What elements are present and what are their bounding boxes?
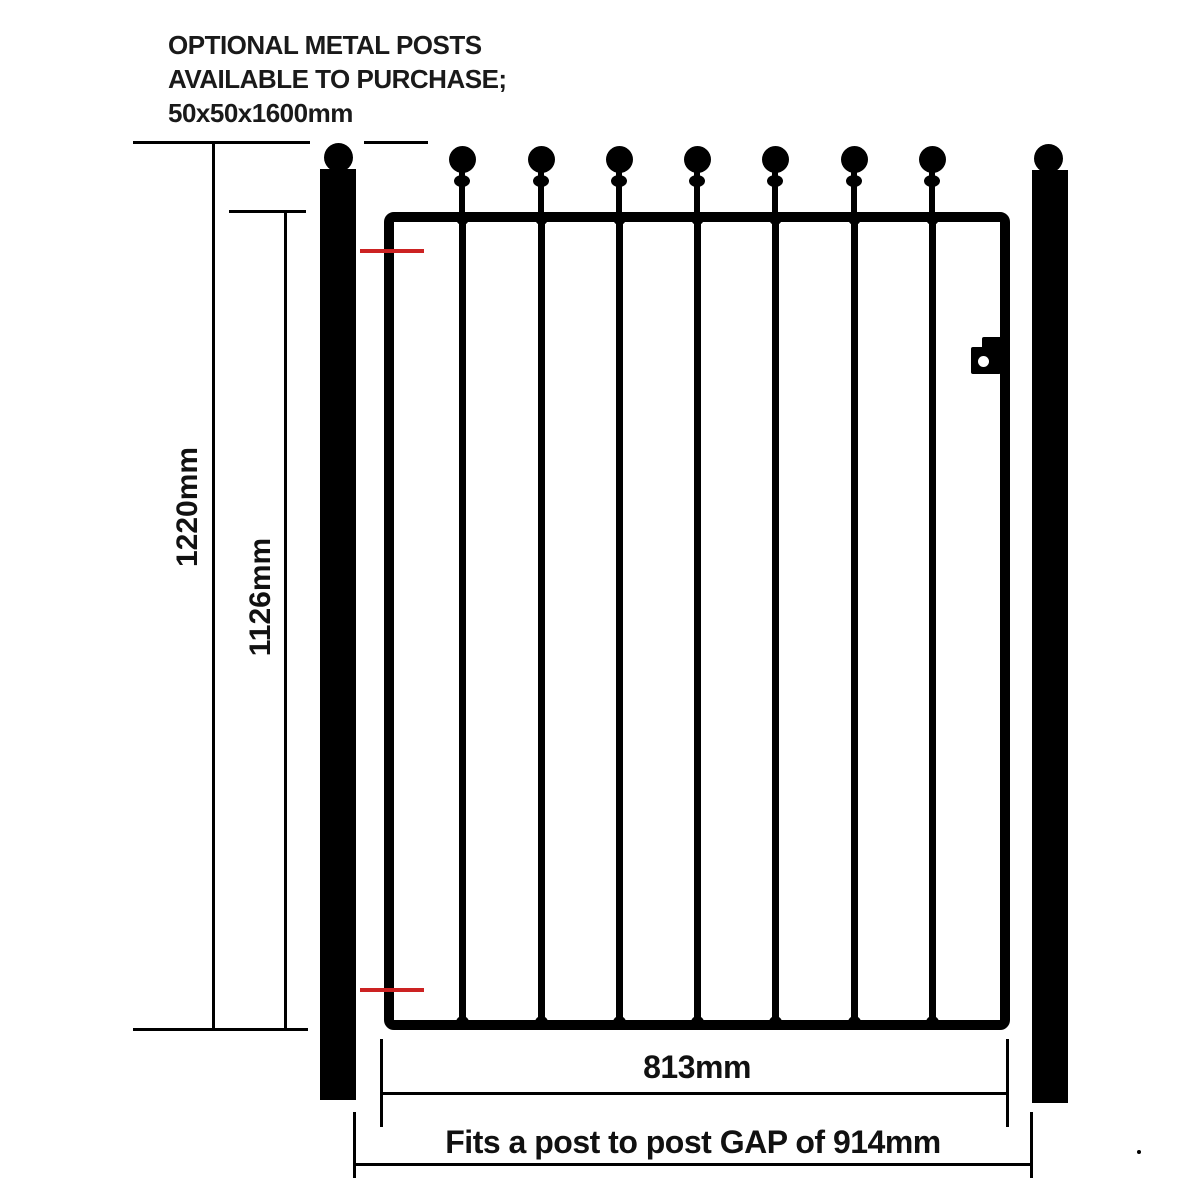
gate-vertical-bar <box>772 220 779 1024</box>
ball-finial-icon <box>449 146 476 173</box>
hinge-marker-top <box>360 249 424 253</box>
bar-top-joint <box>456 212 469 225</box>
optional-posts-note: OPTIONAL METAL POSTS AVAILABLE TO PURCHA… <box>168 28 507 130</box>
right-post <box>1032 170 1068 1103</box>
gate-vertical-bar <box>694 220 701 1024</box>
bar-bottom-joint <box>613 1016 626 1029</box>
ball-finial-icon <box>762 146 789 173</box>
extension-line-top-right <box>364 141 428 144</box>
right-post-ball-top <box>1034 144 1063 173</box>
finial-collar <box>846 175 862 187</box>
overall-height-label: 1220mm <box>171 447 205 567</box>
bar-top-joint <box>535 212 548 225</box>
ball-finial-icon <box>528 146 555 173</box>
gate-vertical-bar <box>616 220 623 1024</box>
bar-top-joint <box>848 212 861 225</box>
bar-bottom-joint <box>769 1016 782 1029</box>
note-line-3: 50x50x1600mm <box>168 96 507 130</box>
gate-height-label: 1126mm <box>244 538 278 656</box>
bar-top-joint <box>926 212 939 225</box>
latch-hole <box>978 356 989 367</box>
bar-top-joint <box>691 212 704 225</box>
bar-bottom-joint <box>691 1016 704 1029</box>
bar-bottom-joint <box>456 1016 469 1029</box>
gate-vertical-bar <box>538 220 545 1024</box>
gate-width-label: 813mm <box>384 1049 1010 1086</box>
dimension-line-overall-height <box>212 141 215 1031</box>
finial-collar <box>924 175 940 187</box>
extension-line-top-left <box>133 141 310 144</box>
ball-finial-icon <box>606 146 633 173</box>
gap-label: Fits a post to post GAP of 914mm <box>353 1124 1033 1161</box>
finial-collar <box>454 175 470 187</box>
bar-bottom-joint <box>535 1016 548 1029</box>
gate-width-dimension-line <box>380 1092 1009 1095</box>
finial-collar <box>689 175 705 187</box>
ball-finial-icon <box>684 146 711 173</box>
ball-finial-icon <box>841 146 868 173</box>
note-line-1: OPTIONAL METAL POSTS <box>168 28 507 62</box>
left-post-ball-top <box>324 143 353 172</box>
gate-dimension-diagram: OPTIONAL METAL POSTS AVAILABLE TO PURCHA… <box>0 0 1200 1200</box>
ball-finial-icon <box>919 146 946 173</box>
bar-bottom-joint <box>848 1016 861 1029</box>
dimension-line-gate-height <box>284 210 287 1031</box>
bar-bottom-joint <box>926 1016 939 1029</box>
extension-line-bottom <box>133 1028 308 1031</box>
bar-top-joint <box>769 212 782 225</box>
finial-collar <box>611 175 627 187</box>
left-post <box>320 169 356 1100</box>
finial-collar <box>767 175 783 187</box>
gate-width-tick-left <box>380 1039 383 1127</box>
gap-dimension-line <box>353 1163 1033 1166</box>
gate-vertical-bar <box>459 220 466 1024</box>
note-line-2: AVAILABLE TO PURCHASE; <box>168 62 507 96</box>
gate-vertical-bar <box>929 220 936 1024</box>
hinge-marker-bottom <box>360 988 424 992</box>
artifact-dot <box>1137 1150 1141 1154</box>
gate-vertical-bar <box>851 220 858 1024</box>
finial-collar <box>533 175 549 187</box>
extension-line-gate-top <box>229 210 306 213</box>
bar-top-joint <box>613 212 626 225</box>
